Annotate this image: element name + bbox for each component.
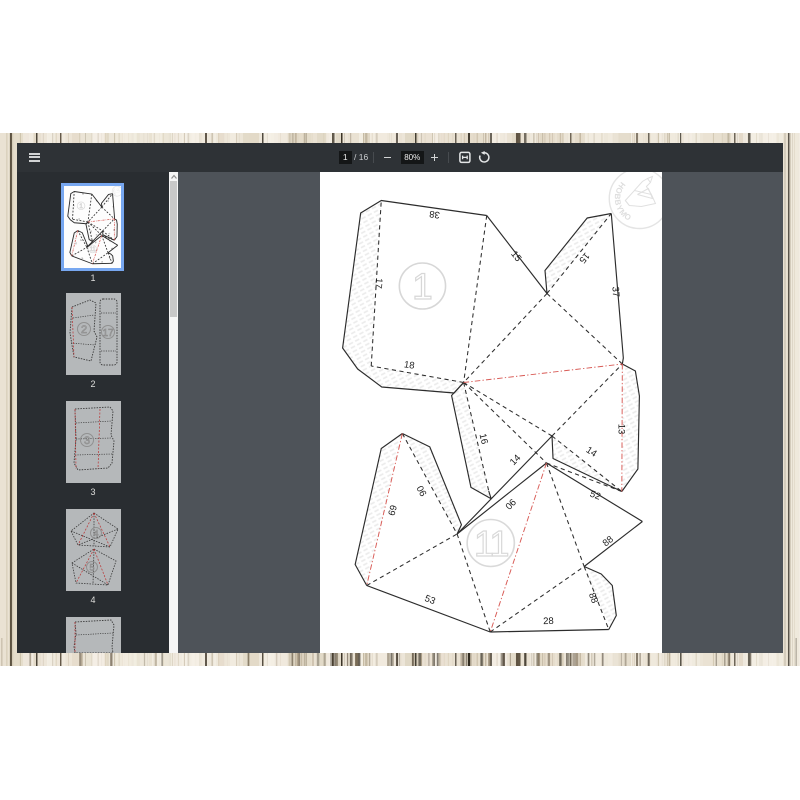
svg-text:B: B [112,191,114,192]
svg-text:13: 13 [615,424,626,435]
svg-text:15: 15 [508,249,523,264]
svg-text:88: 88 [601,534,616,549]
svg-text:3: 3 [84,435,90,447]
svg-text:17: 17 [102,328,114,339]
svg-text:14: 14 [508,452,524,468]
svg-text:17: 17 [372,277,384,289]
svg-text:28: 28 [543,616,554,627]
svg-text:17: 17 [72,204,74,206]
svg-text:2: 2 [81,324,87,336]
svg-text:38: 38 [429,208,441,220]
svg-text:16: 16 [477,433,490,446]
svg-text:90: 90 [502,496,517,511]
svg-text:1: 1 [79,203,83,210]
svg-text:53: 53 [423,593,437,607]
svg-text:28: 28 [101,261,103,263]
svg-text:4: 4 [93,529,98,539]
svg-text:90: 90 [415,483,430,497]
svg-text:37: 37 [609,286,621,297]
svg-text:69: 69 [385,504,398,517]
svg-text:5: 5 [89,563,94,573]
svg-text:11: 11 [474,523,508,564]
svg-text:18: 18 [403,359,415,371]
svg-text:16: 16 [90,230,92,232]
svg-text:14: 14 [584,445,599,460]
svg-text:52: 52 [588,489,602,503]
svg-text:1: 1 [412,265,433,307]
svg-text:11: 11 [90,247,97,253]
